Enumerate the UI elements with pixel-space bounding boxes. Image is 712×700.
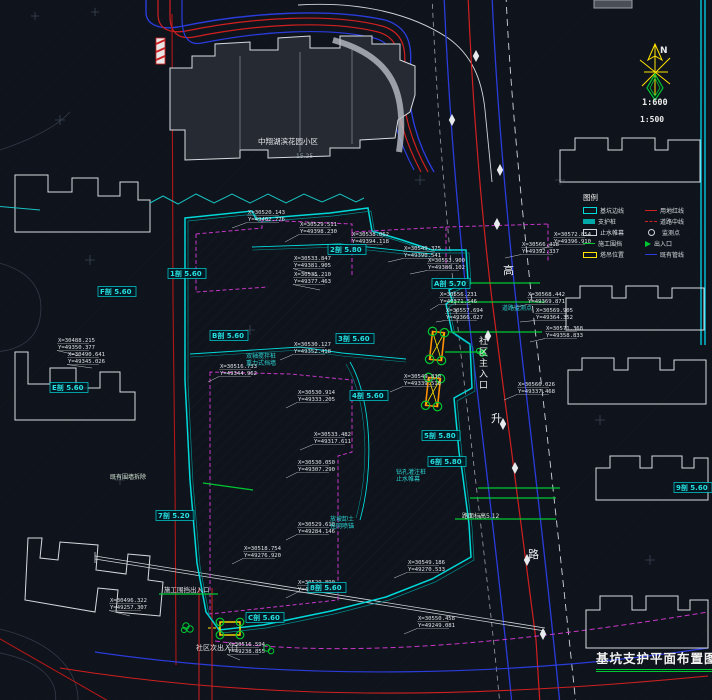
coord-y-text: Y=49394.118 bbox=[352, 239, 390, 245]
section-elevation-label: 4剖 5.60 bbox=[350, 391, 388, 401]
coord-x-text: X=30556.231 bbox=[440, 292, 477, 298]
coord-y-text: Y=49358.833 bbox=[546, 333, 583, 339]
coord-x-text: X=30550.458 bbox=[418, 616, 456, 622]
coord-x-text: X=30490.641 bbox=[68, 352, 105, 358]
north-label: N bbox=[660, 46, 668, 56]
coord-y-text: Y=49333.205 bbox=[298, 397, 335, 403]
fence-symbol bbox=[583, 243, 595, 244]
coord-x-text: X=30533.482 bbox=[314, 432, 351, 438]
coord-x-text: X=30530.914 bbox=[298, 390, 336, 396]
drawing-title: 基坑支护平面布置图 bbox=[596, 648, 712, 672]
legend-label: 支护桩 bbox=[598, 217, 616, 226]
coord-x-text: X=30488.215 bbox=[58, 338, 95, 344]
support-note-label: 双轴搅拌桩重力式挡墙 bbox=[246, 352, 276, 367]
pipeline-symbol bbox=[645, 254, 657, 255]
coord-y-text: Y=49344.962 bbox=[220, 371, 257, 377]
note-line-1: 放坡卸土 bbox=[330, 515, 354, 523]
coord-x-text: X=30569.905 bbox=[536, 308, 573, 314]
coord-x-text: X=30538.062 bbox=[352, 232, 389, 238]
legend-row: 止水帷幕 监测点 bbox=[583, 227, 711, 238]
section-elevation-label: F剖 5.60 bbox=[98, 287, 136, 297]
section-elevation-label: E剖 5.60 bbox=[50, 383, 88, 393]
coord-x-text: X=30533.847 bbox=[294, 256, 331, 262]
coord-x-text: X=30530.127 bbox=[294, 342, 331, 348]
coord-x-text: X=30530.050 bbox=[298, 460, 335, 466]
coord-y-text: Y=49257.307 bbox=[110, 605, 147, 611]
coord-x-text: X=30553.900 bbox=[428, 258, 465, 264]
legend-panel: 图例 基坑边线 用地红线 支护桩 道路中线 止水帷幕 监测点 施工围挡 出入口 … bbox=[583, 192, 711, 260]
section-elevation-label: 8剖 5.60 bbox=[308, 583, 346, 593]
coord-y-text: Y=49345.026 bbox=[68, 359, 105, 365]
section-label-text: 4剖 5.60 bbox=[352, 391, 384, 400]
coord-y-text: Y=49381.905 bbox=[294, 263, 331, 269]
legend-label: 塔吊位置 bbox=[600, 250, 624, 259]
section-elevation-label: 6剖 5.80 bbox=[428, 457, 466, 467]
gate-symbol bbox=[156, 38, 165, 64]
section-label-text: 1剖 5.60 bbox=[170, 269, 202, 278]
section-label-text: 3剖 5.60 bbox=[338, 334, 370, 343]
road-name-char-3: 路 bbox=[528, 546, 539, 562]
section-elevation-label: 5剖 5.80 bbox=[422, 431, 460, 441]
section-elevation-label: 3剖 5.60 bbox=[336, 334, 374, 344]
note-line-1: 钻孔灌注桩 bbox=[396, 468, 426, 476]
scale-primary: 1:600 bbox=[642, 98, 668, 108]
coord-x-text: X=30535.210 bbox=[294, 272, 331, 278]
note-line-2: 止水帷幕 bbox=[396, 475, 420, 483]
legend-label: 用地红线 bbox=[660, 206, 684, 215]
coord-y-text: Y=49350.377 bbox=[58, 345, 95, 351]
section-label-text: F剖 5.60 bbox=[100, 287, 132, 296]
coord-x-text: X=30549.375 bbox=[404, 246, 441, 252]
section-label-text: 9剖 5.60 bbox=[676, 483, 708, 492]
legend-row: 基坑边线 用地红线 bbox=[583, 205, 711, 216]
legend-row: 施工围挡 出入口 bbox=[583, 238, 711, 249]
complex-elevation: 15.25 bbox=[296, 153, 313, 160]
section-label-text: 7剖 5.20 bbox=[158, 511, 190, 520]
coord-x-text: X=30549.830 bbox=[404, 374, 441, 380]
section-label-text: E剖 5.60 bbox=[52, 383, 84, 392]
coord-y-text: Y=49386.102 bbox=[428, 265, 465, 271]
crane-symbol bbox=[583, 252, 597, 258]
legend-label: 道路中线 bbox=[660, 217, 684, 226]
section-elevation-label: 2剖 5.80 bbox=[328, 245, 366, 255]
road-center-symbol bbox=[645, 221, 657, 222]
coord-x-text: X=30557.694 bbox=[446, 308, 484, 314]
section-label-text: 6剖 5.80 bbox=[430, 457, 462, 466]
section-elevation-label: C剖 5.60 bbox=[246, 613, 284, 623]
cad-geometry-layer: X=30520.143Y=49402.776X=30529.511Y=49398… bbox=[0, 0, 712, 700]
legend-label: 既有管线 bbox=[660, 250, 684, 259]
complex-name-label: 中翔湖滨花园小区 bbox=[258, 136, 318, 147]
coord-y-text: Y=49377.463 bbox=[294, 279, 331, 285]
section-elevation-label: 7剖 5.20 bbox=[156, 511, 194, 521]
coord-y-text: Y=49317.611 bbox=[314, 439, 351, 445]
road-level-label: 路面标高5.12 bbox=[462, 511, 499, 520]
section-label-text: B剖 5.60 bbox=[212, 331, 244, 340]
legend-label: 施工围挡 bbox=[598, 239, 622, 248]
wall-note-label: 既有围墙拆除 bbox=[110, 472, 146, 481]
section-elevation-label: A剖 5.70 bbox=[432, 279, 470, 289]
scale-secondary: 1:500 bbox=[640, 115, 664, 124]
road-name-char-2: 升 bbox=[491, 410, 502, 426]
coord-y-text: Y=49339.518 bbox=[404, 381, 442, 387]
note-line-1: 双轴搅拌桩 bbox=[246, 352, 276, 360]
coord-y-text: Y=49366.027 bbox=[446, 315, 483, 321]
coord-x-text: X=30571.368 bbox=[546, 326, 584, 332]
coord-y-text: Y=49307.290 bbox=[298, 467, 335, 473]
coord-x-text: X=30566.026 bbox=[518, 382, 555, 388]
coord-x-text: X=30529.511 bbox=[300, 222, 337, 228]
pit-edge-symbol bbox=[583, 207, 597, 214]
support-note-label: 道路监测点 bbox=[502, 304, 532, 312]
coord-y-text: Y=49402.776 bbox=[248, 217, 285, 223]
legend-label: 止水帷幕 bbox=[600, 228, 624, 237]
section-elevation-label: 9剖 5.60 bbox=[674, 483, 712, 493]
coord-y-text: Y=49398.230 bbox=[300, 229, 337, 235]
coord-y-text: Y=49352.418 bbox=[294, 349, 332, 355]
monitor-point-symbol bbox=[648, 229, 655, 236]
legend-label: 出入口 bbox=[654, 239, 672, 248]
note-line-2: 重力式挡墙 bbox=[246, 359, 276, 367]
coord-y-text: Y=49276.920 bbox=[244, 553, 281, 559]
coord-x-text: X=30568.442 bbox=[528, 292, 565, 298]
section-label-text: C剖 5.60 bbox=[248, 613, 280, 622]
coord-y-text: Y=49371.546 bbox=[440, 299, 477, 305]
legend-title: 图例 bbox=[583, 192, 711, 203]
section-label-text: A剖 5.70 bbox=[434, 279, 466, 288]
red-line-symbol bbox=[645, 210, 657, 211]
section-elevation-label: B剖 5.60 bbox=[210, 331, 248, 341]
waterstop-symbol bbox=[583, 229, 597, 236]
fence-gate-label: 施工围挡出入口 bbox=[164, 584, 210, 594]
main-entrance-label: 社区主入口 bbox=[476, 336, 489, 391]
legend-label: 监测点 bbox=[662, 228, 680, 237]
section-elevation-label: 1剖 5.60 bbox=[168, 269, 206, 279]
support-pile-symbol bbox=[583, 219, 595, 224]
legend-row: 塔吊位置 既有管线 bbox=[583, 249, 711, 260]
cad-drawing-canvas: X=30520.143Y=49402.776X=30529.511Y=49398… bbox=[0, 0, 712, 700]
coord-x-text: X=30518.754 bbox=[244, 546, 282, 552]
coord-x-text: X=30520.143 bbox=[248, 210, 285, 216]
secondary-entrance-label: 社区次出入口 bbox=[196, 643, 238, 653]
support-note-label: 放坡卸土挂网喷锚 bbox=[330, 515, 354, 530]
coord-y-text: Y=49364.352 bbox=[536, 315, 573, 321]
coord-y-text: Y=49337.468 bbox=[518, 389, 556, 395]
coord-y-text: Y=49270.533 bbox=[408, 567, 445, 573]
coord-x-text: X=30496.322 bbox=[110, 598, 147, 604]
legend-row: 支护桩 道路中线 bbox=[583, 216, 711, 227]
road-name-char-1: 高 bbox=[503, 262, 514, 278]
coord-x-text: X=30549.186 bbox=[408, 560, 445, 566]
section-label-text: 2剖 5.80 bbox=[330, 245, 362, 254]
section-label-text: 5剖 5.80 bbox=[424, 431, 456, 440]
entrance-symbol bbox=[645, 241, 651, 247]
coord-y-text: Y=49249.081 bbox=[418, 623, 455, 629]
section-label-text: 8剖 5.60 bbox=[310, 583, 342, 592]
legend-label: 基坑边线 bbox=[600, 206, 624, 215]
note-line-1: 道路监测点 bbox=[502, 304, 532, 312]
coord-y-text: Y=49369.871 bbox=[528, 299, 565, 305]
note-line-2: 挂网喷锚 bbox=[330, 522, 354, 530]
